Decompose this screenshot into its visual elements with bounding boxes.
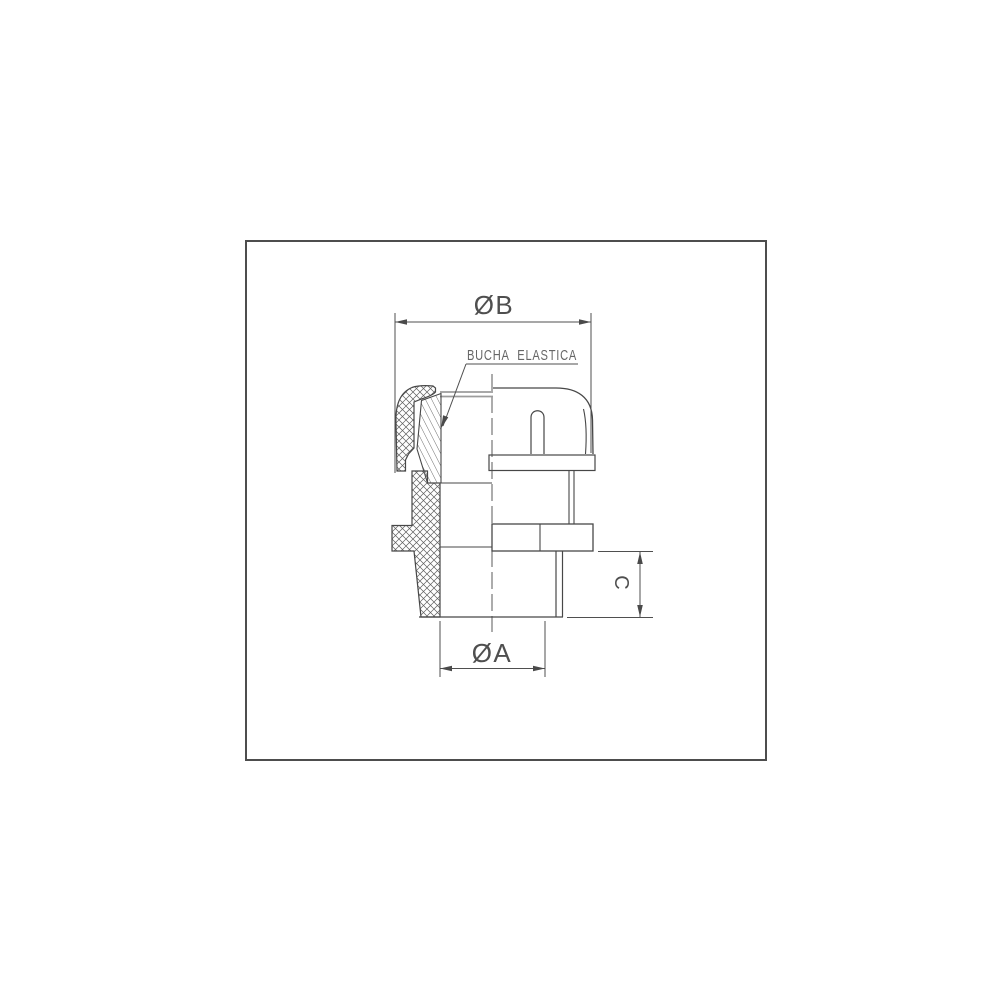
washer-flange: [489, 455, 595, 471]
arrowhead-right: [579, 319, 591, 325]
callout-label: BUCHA ELASTICA: [467, 347, 577, 364]
bore-step-lines: [440, 483, 492, 547]
bushing-top-soft-edges: [440, 392, 493, 397]
dome-cap-outline: [493, 388, 593, 454]
dim-label-height-c: C: [610, 575, 632, 590]
dim-label-diameter-a: ØA: [472, 638, 513, 668]
arrowhead-down: [637, 605, 643, 617]
nut-outline: [492, 524, 593, 551]
technical-drawing-canvas: ØB ØA C BUCHA ELASTICA: [0, 0, 1000, 1000]
dimension-height-c: C: [567, 552, 653, 618]
arrowhead-left: [440, 666, 452, 672]
body-section-hatched: [392, 471, 440, 617]
dome-wrench-slot: [531, 411, 544, 454]
arrowhead-left: [395, 319, 407, 325]
arrowhead-up: [637, 552, 643, 564]
elastic-bushing-section-hatched: [417, 394, 441, 484]
dim-label-diameter-b: ØB: [474, 290, 515, 320]
arrowhead-right: [533, 666, 545, 672]
leader-arrowhead: [441, 415, 448, 428]
drawing-page: ØB ØA C BUCHA ELASTICA: [0, 0, 1000, 1000]
tube-outline: [569, 471, 574, 525]
